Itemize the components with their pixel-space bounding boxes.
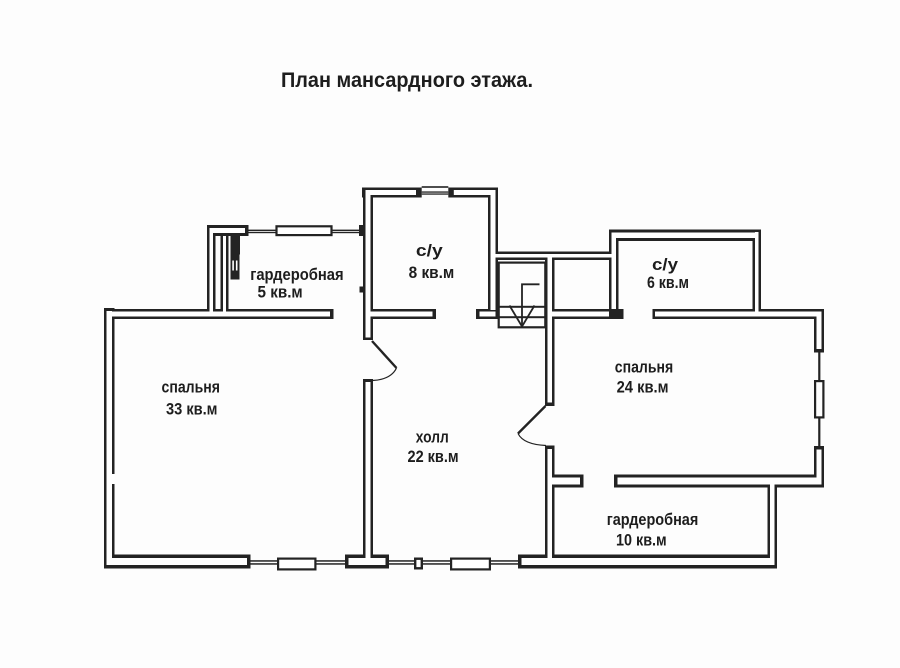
svg-text:10 кв.м: 10 кв.м [616,531,667,550]
svg-text:План мансардного этажа.: План мансардного этажа. [281,68,533,92]
svg-text:33 кв.м: 33 кв.м [166,400,218,419]
svg-text:гардеробная: гардеробная [607,510,699,529]
svg-text:5 кв.м: 5 кв.м [258,282,303,301]
svg-text:22 кв.м: 22 кв.м [408,447,459,466]
svg-text:6 кв.м: 6 кв.м [647,273,689,292]
svg-text:с/у: с/у [416,241,443,260]
svg-text:8 кв.м: 8 кв.м [409,263,455,282]
svg-text:спальня: спальня [162,378,221,397]
svg-text:холл: холл [416,428,449,447]
svg-text:24 кв.м: 24 кв.м [617,377,669,396]
svg-text:спальня: спальня [615,358,673,377]
svg-text:гардеробная: гардеробная [250,265,343,284]
svg-text:с/у: с/у [652,255,679,274]
